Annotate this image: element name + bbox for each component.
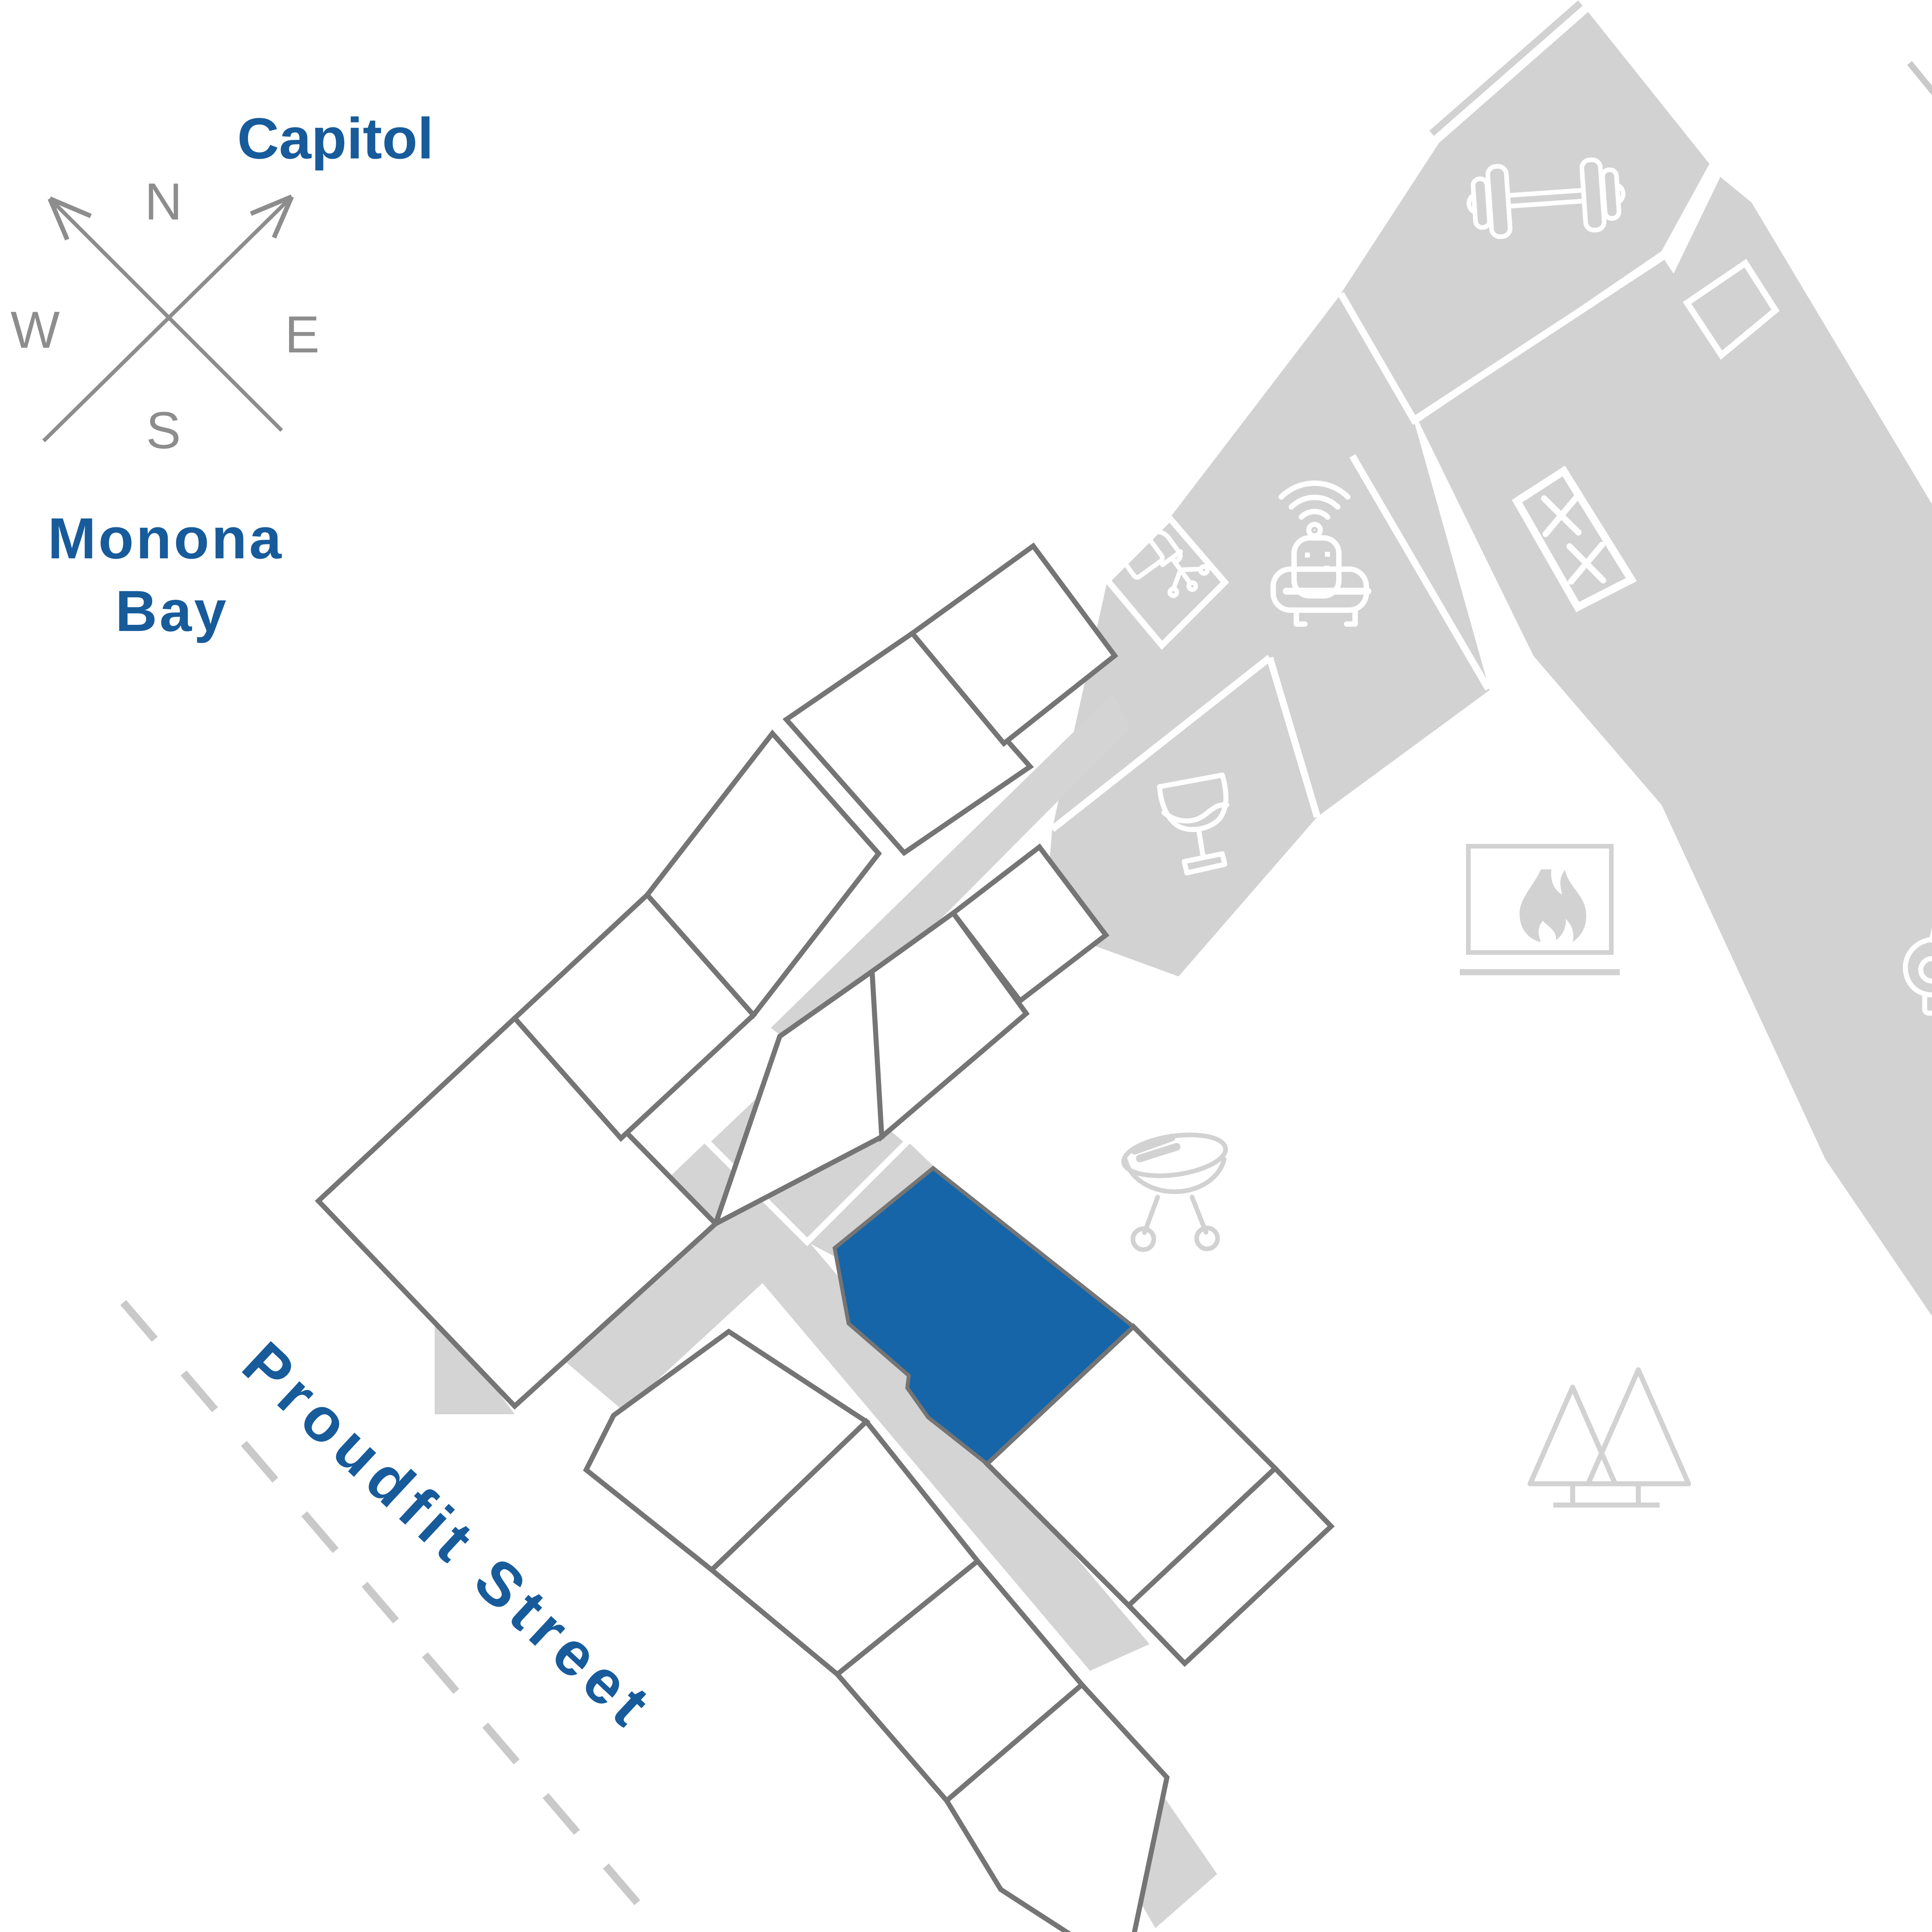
svg-text:E: E [285,305,320,364]
svg-text:S: S [146,401,181,459]
svg-text:Capitol: Capitol [237,106,434,171]
svg-text:N: N [145,172,182,231]
svg-text:Bay: Bay [115,578,228,643]
svg-text:W: W [10,301,60,359]
svg-text:Monona: Monona [48,506,284,571]
